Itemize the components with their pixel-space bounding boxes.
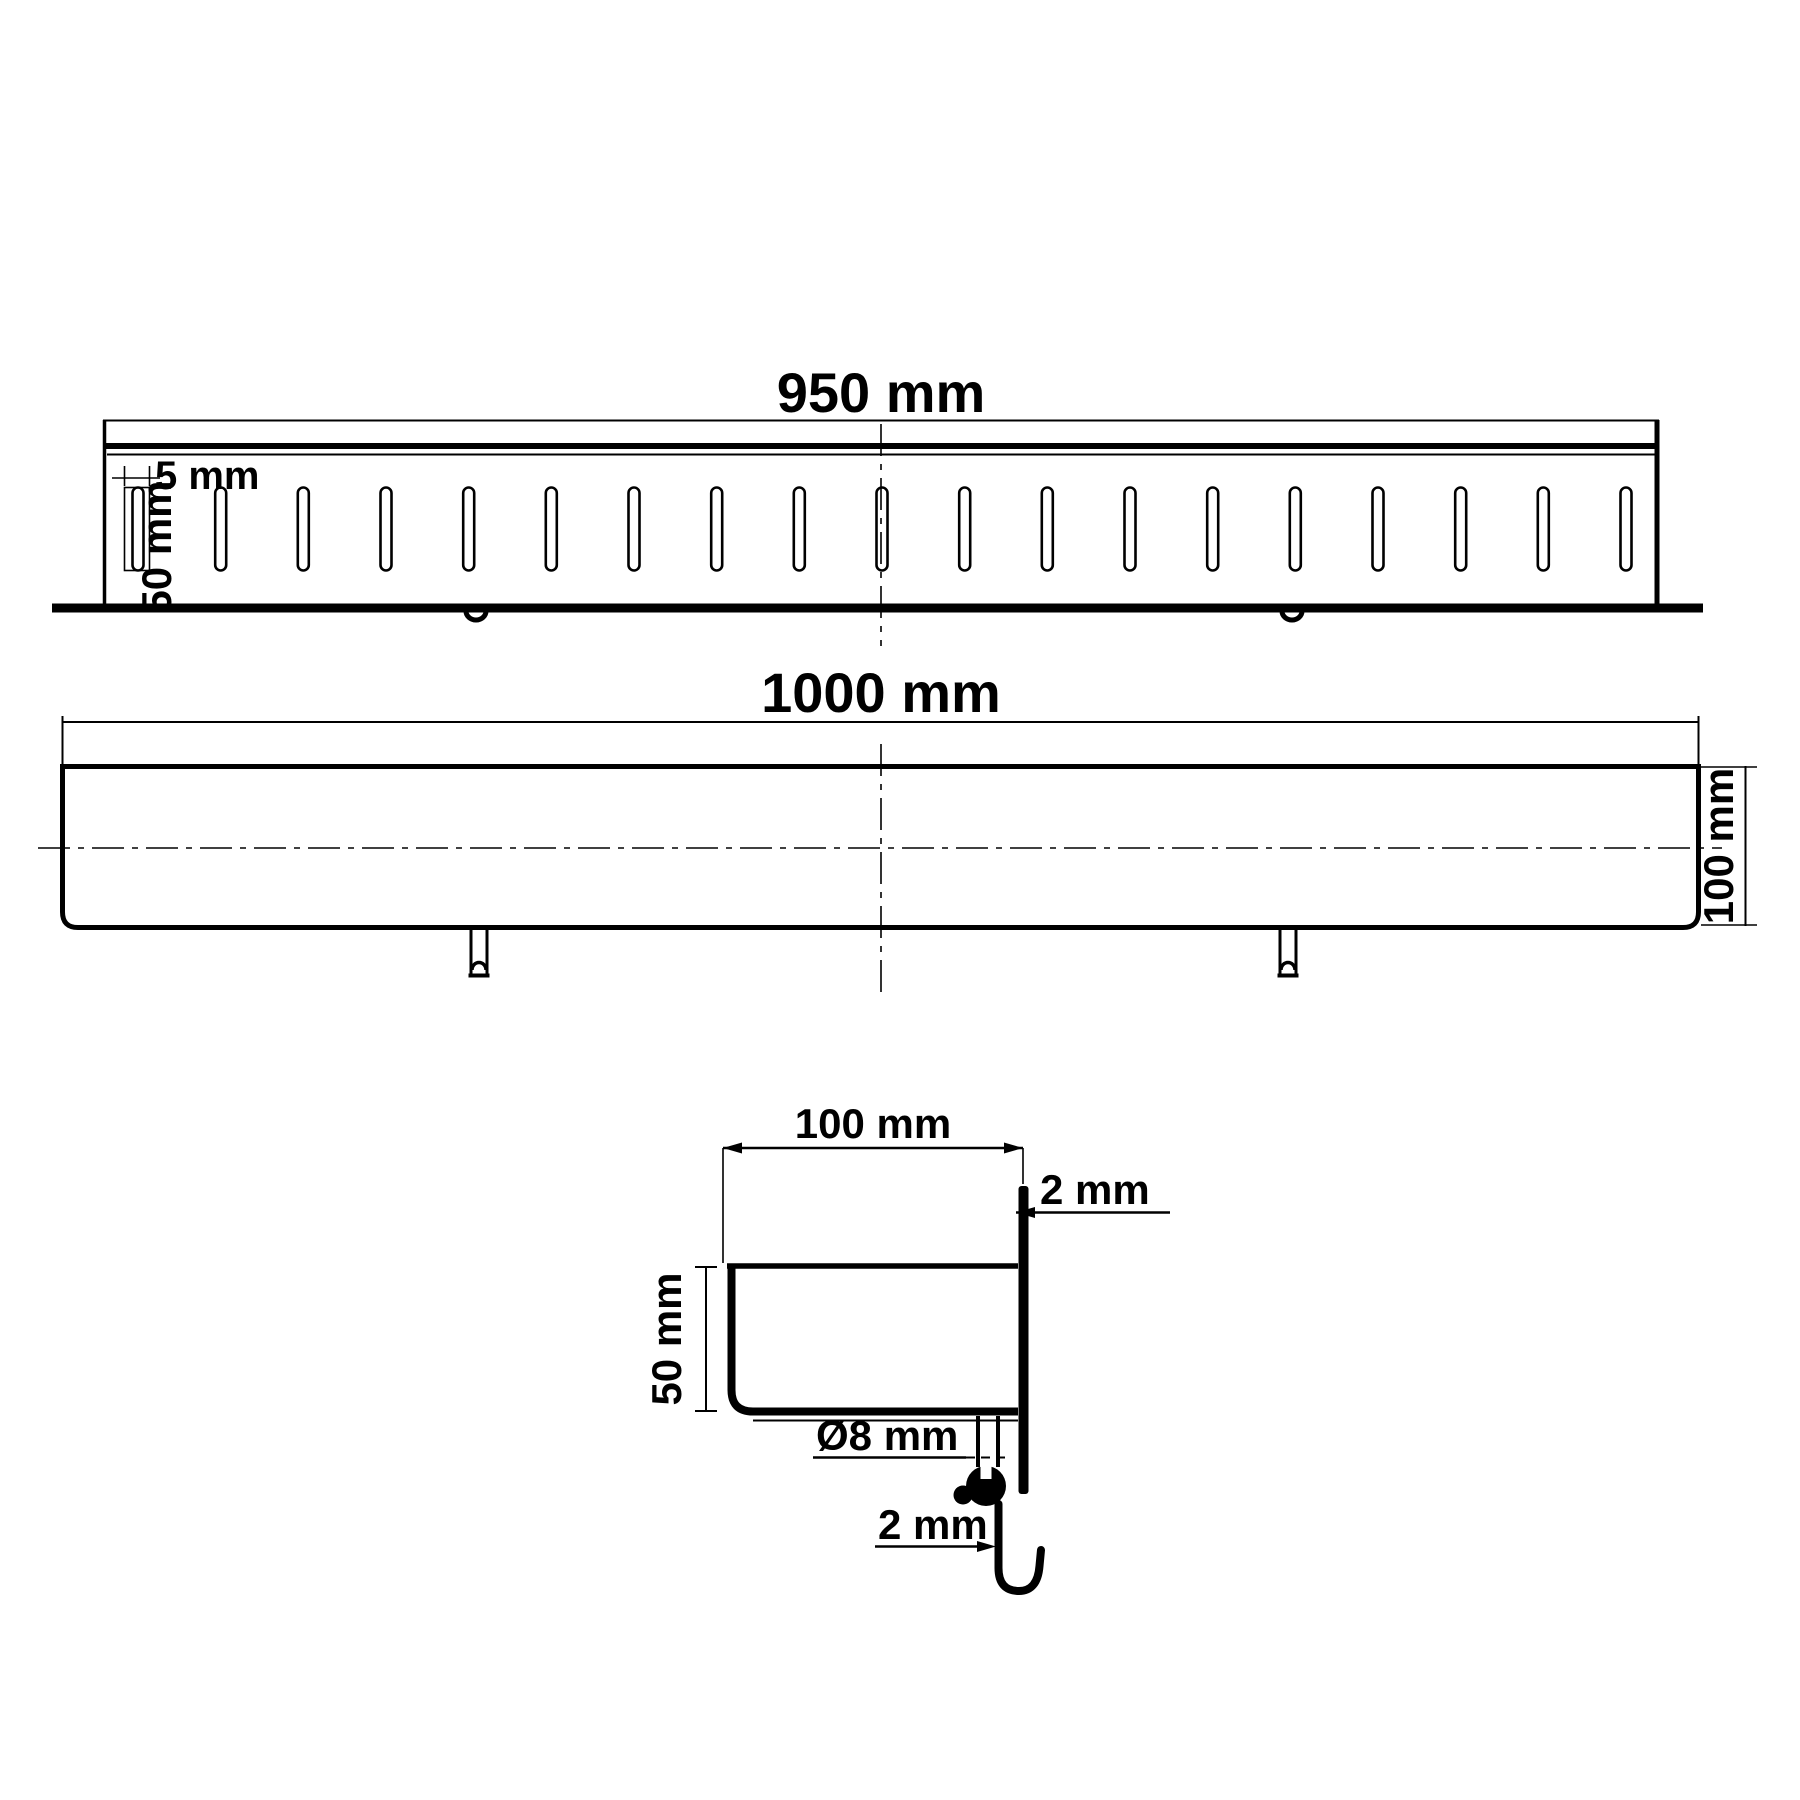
slot-length-label: 50 mm: [133, 480, 180, 613]
section-width-extension-lines: [723, 1148, 1023, 1263]
section-channel-wall: [732, 1266, 1019, 1412]
grate-slot: [1621, 488, 1632, 571]
grate-slot: [711, 488, 722, 571]
drawing-sheet: 950 mm 5 mm 50 mm 1000 mm: [0, 0, 1800, 1800]
technical-drawing: 950 mm 5 mm 50 mm 1000 mm: [0, 0, 1800, 1800]
grate-slot: [1207, 488, 1218, 571]
grate-slot: [794, 488, 805, 571]
channel-length-label: 1000 mm: [761, 661, 1001, 724]
section-depth-label: 50 mm: [643, 1272, 690, 1405]
dimension-arrow-left: [723, 1143, 742, 1154]
grate-slot: [1455, 488, 1466, 571]
grate-slots: [133, 488, 1632, 571]
grate-slot: [877, 488, 888, 571]
grate-length-label: 950 mm: [777, 361, 986, 424]
grate-slot: [1538, 488, 1549, 571]
grate-slot: [298, 488, 309, 571]
grate-slot: [1125, 488, 1136, 571]
dimension-arrow-right: [1004, 1143, 1023, 1154]
hook-pin-slot: [981, 1464, 992, 1479]
pin-diameter-label: Ø8 mm: [816, 1412, 958, 1459]
grate-slot: [959, 488, 970, 571]
hook-thickness-label: 2 mm: [878, 1501, 988, 1548]
section-width-label: 100 mm: [795, 1100, 951, 1147]
grate-slot: [546, 488, 557, 571]
hook-wire: [999, 1504, 1042, 1591]
channel-foot-right: [1278, 930, 1299, 976]
grate-slot: [381, 488, 392, 571]
channel-foot-left: [469, 930, 490, 976]
hook-pin: [978, 1416, 998, 1467]
grate-slot: [1373, 488, 1384, 571]
grate-slot: [463, 488, 474, 571]
edge-thickness-label: 2 mm: [1040, 1166, 1150, 1213]
grate-slot: [1042, 488, 1053, 571]
grate-front-view: 950 mm 5 mm 50 mm: [52, 361, 1703, 646]
section-depth-dimension-line: [695, 1267, 717, 1411]
cross-section-view: 100 mm 2 mm 50 mm Ø8 mm 2 mm: [643, 1100, 1170, 1591]
channel-body: [63, 767, 1699, 928]
grate-slot: [215, 488, 226, 571]
channel-side-view: 1000 mm 100 mm: [38, 661, 1757, 992]
section-edge-plate: [1019, 1186, 1029, 1494]
grate-slot: [1290, 488, 1301, 571]
grate-slot: [629, 488, 640, 571]
channel-height-label: 100 mm: [1695, 768, 1742, 924]
